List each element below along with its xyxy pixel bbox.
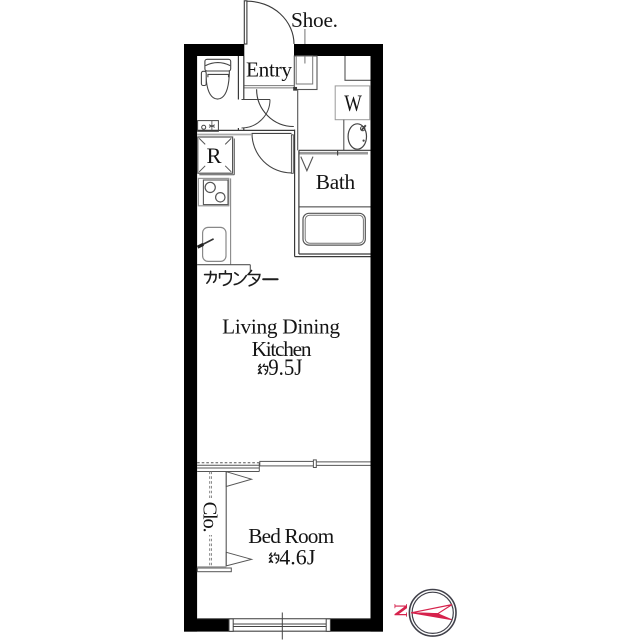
svg-text:Shoe.: Shoe.	[291, 8, 338, 32]
svg-text:Clo.: Clo.	[199, 502, 221, 533]
svg-text:Entry: Entry	[246, 57, 292, 81]
svg-text:4.6J: 4.6J	[279, 544, 315, 569]
svg-text:9.5J: 9.5J	[268, 355, 302, 381]
svg-text:Bath: Bath	[316, 170, 356, 194]
svg-text:R: R	[207, 143, 222, 168]
svg-text:W: W	[344, 91, 362, 117]
svg-text:N: N	[390, 604, 410, 618]
svg-text:Living Dining: Living Dining	[222, 315, 340, 339]
